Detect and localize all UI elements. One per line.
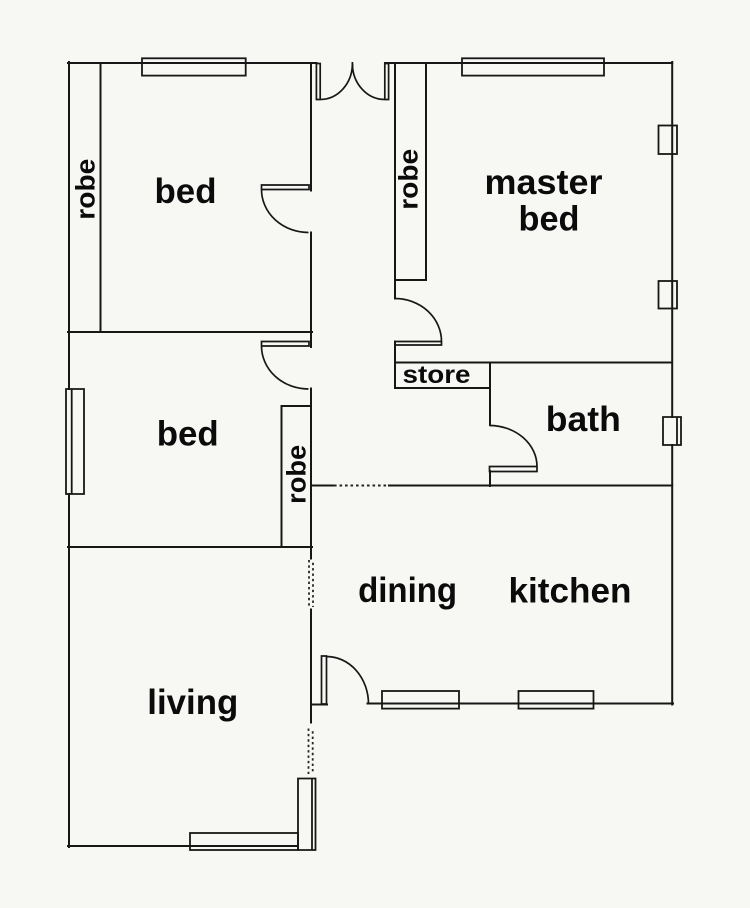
svg-text:bath: bath (546, 400, 621, 439)
svg-text:robe: robe (394, 149, 424, 210)
svg-text:dining: dining (358, 571, 457, 610)
svg-text:robe: robe (71, 159, 101, 220)
svg-text:bed: bed (155, 172, 217, 211)
svg-text:living: living (147, 683, 238, 722)
svg-text:kitchen: kitchen (509, 571, 632, 610)
svg-text:robe: robe (281, 445, 311, 504)
svg-text:bed: bed (519, 200, 580, 239)
svg-text:master: master (485, 163, 603, 202)
svg-text:bed: bed (157, 415, 219, 454)
svg-text:store: store (403, 361, 471, 389)
